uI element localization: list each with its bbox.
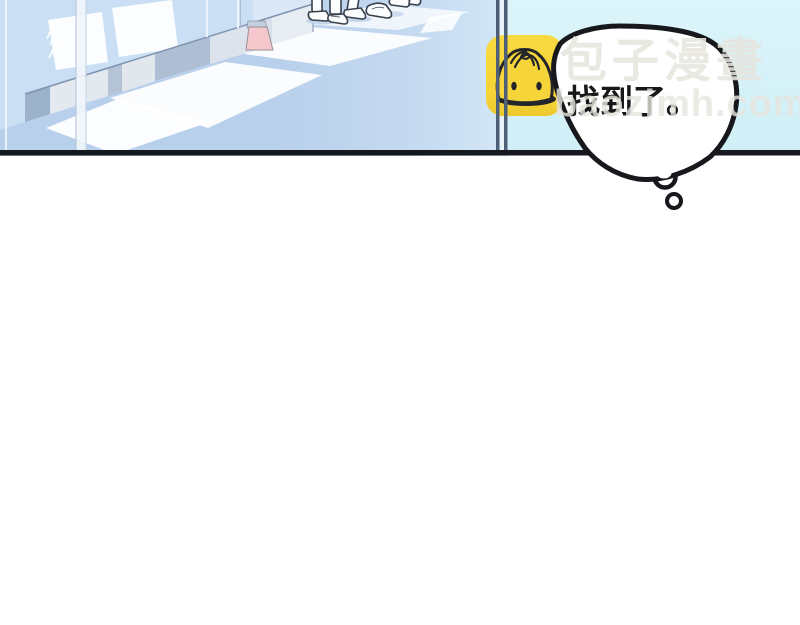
comic-panel: 找到了。 包子漫畫 baozimh.com	[0, 0, 800, 625]
speech-bubble-tail-opening	[657, 168, 672, 179]
bun-left-eye	[511, 82, 516, 91]
watermark-site-url: baozimh.com	[554, 85, 800, 123]
bun-right-eye	[536, 82, 541, 91]
pillar-highlight-strip	[76, 0, 86, 150]
watermark-site-name: 包子漫畫	[560, 37, 768, 84]
window-light-wall-2	[112, 0, 178, 57]
speech-bubble-tail-dot	[667, 194, 681, 208]
